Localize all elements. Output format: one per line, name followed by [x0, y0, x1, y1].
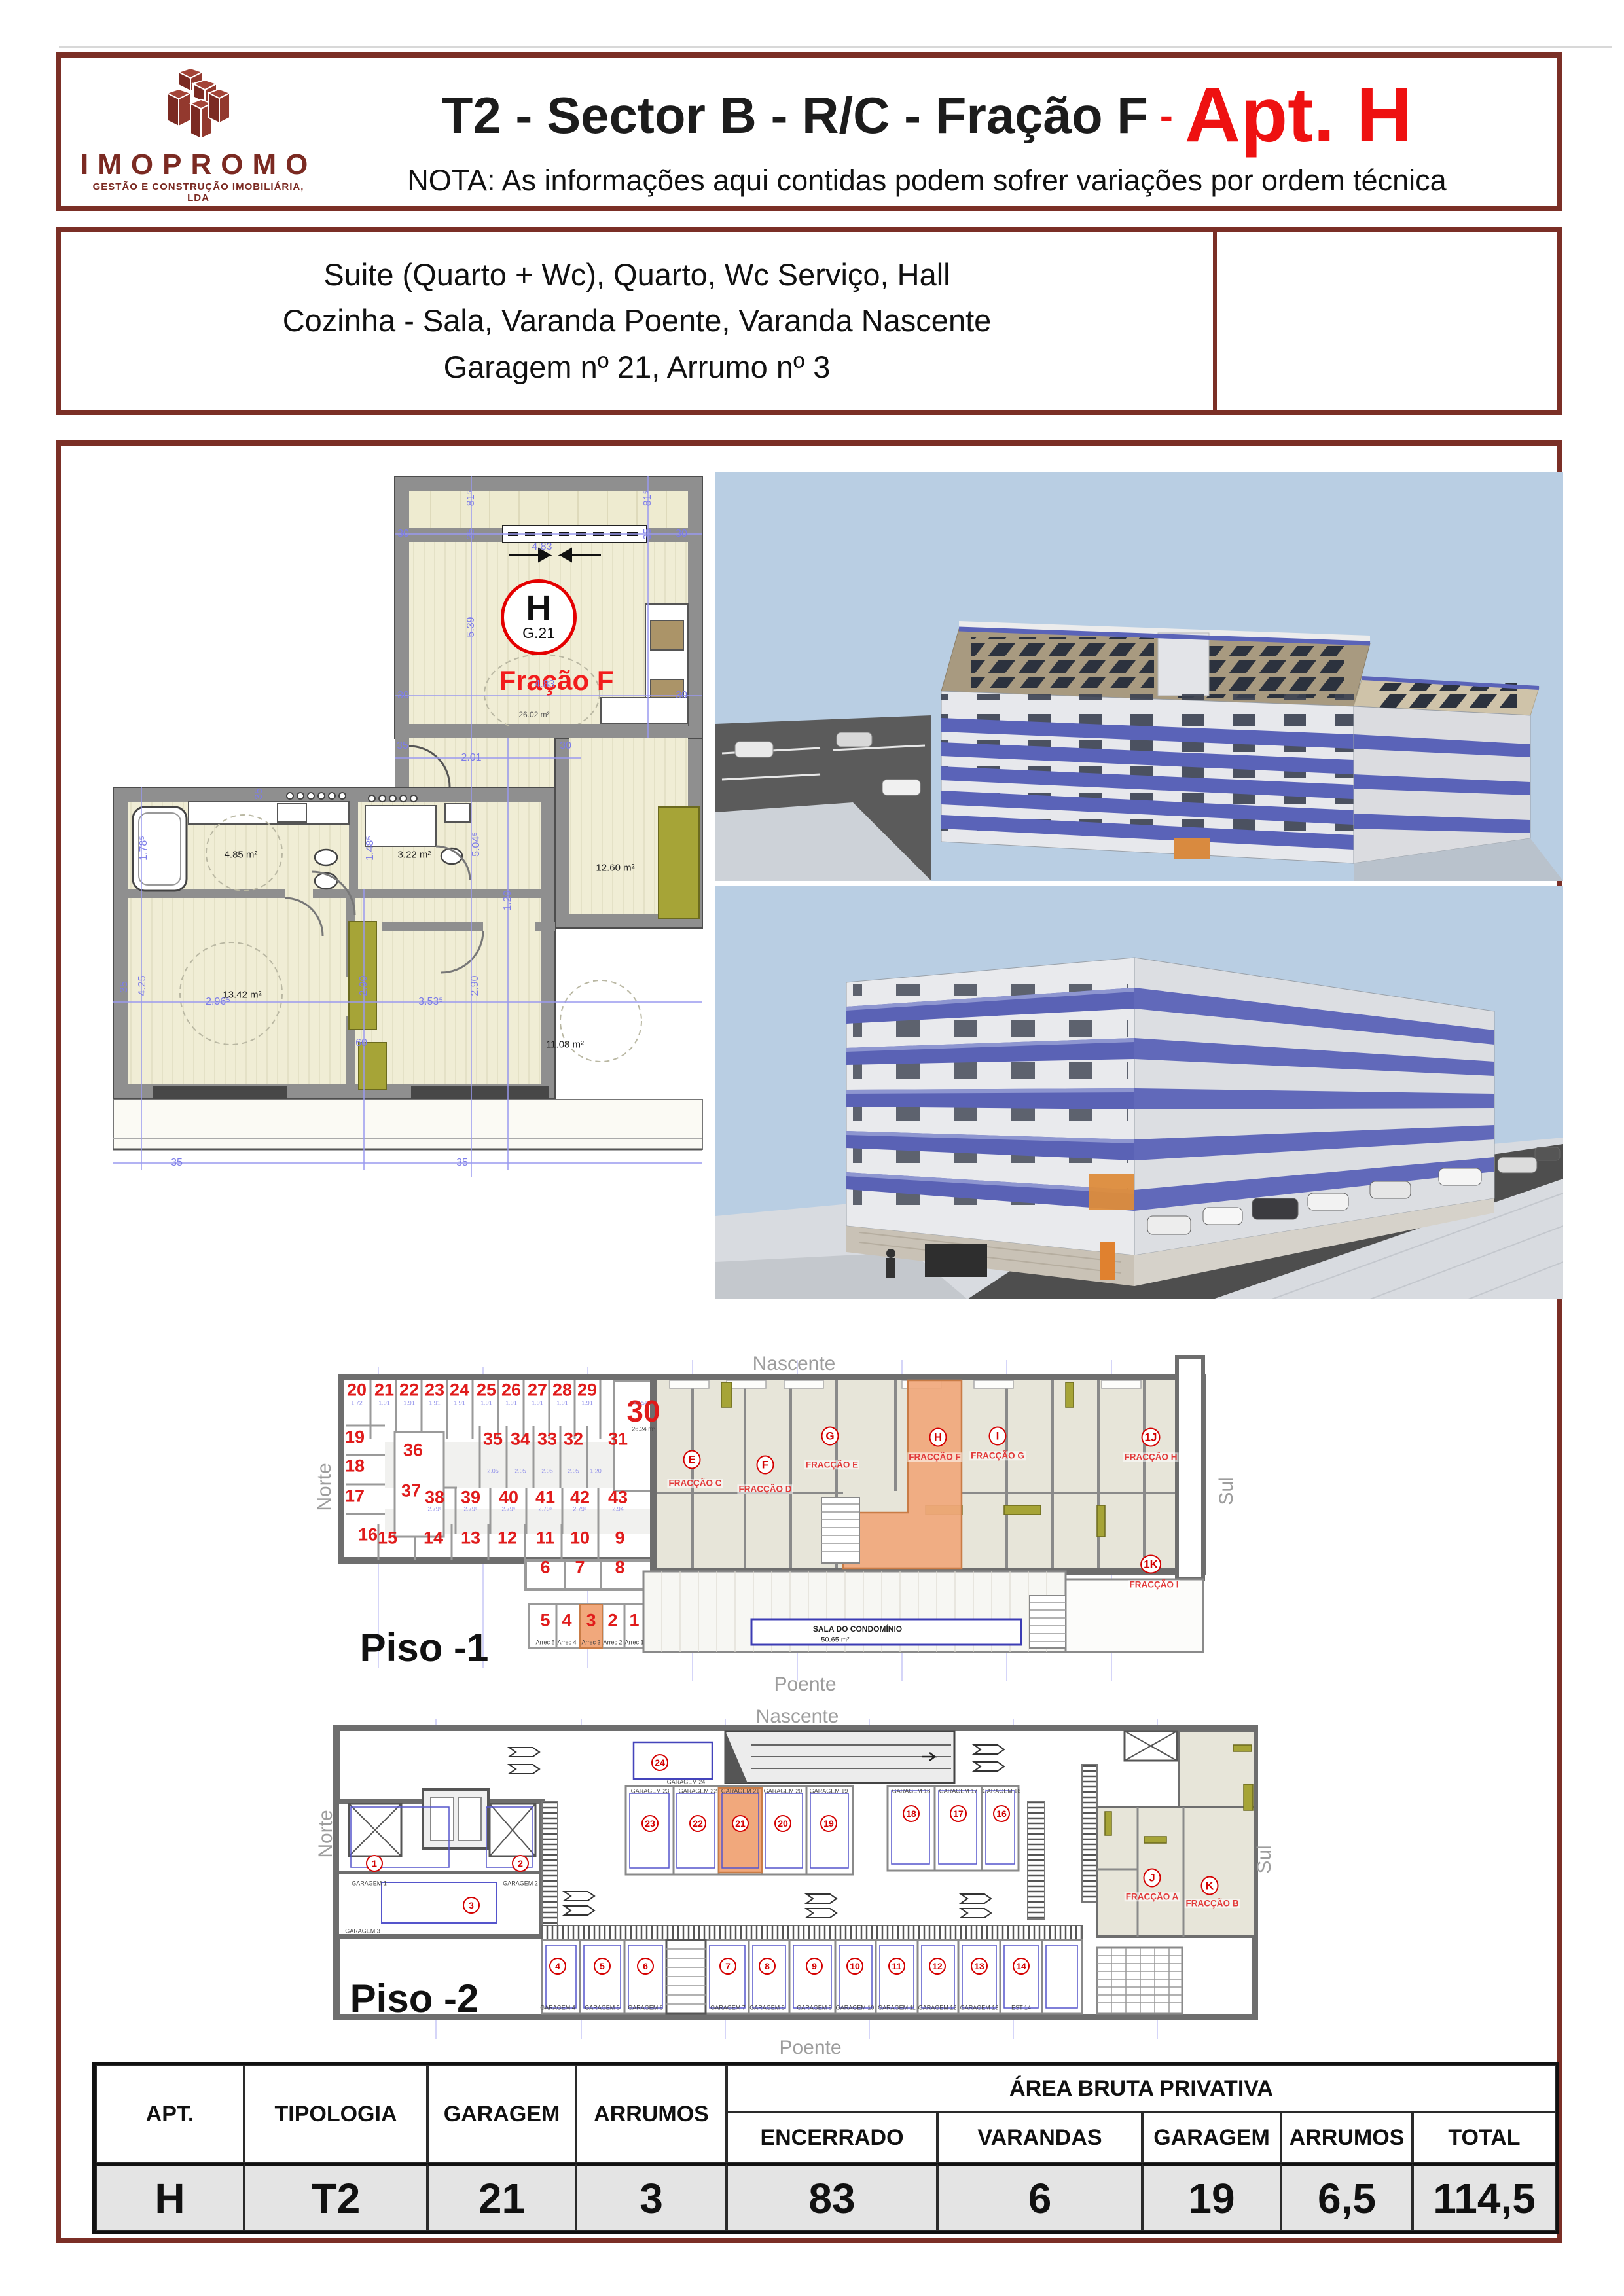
col-group-area-bruta: ÁREA BRUTA PRIVATIVA [727, 2065, 1556, 2112]
col-header-total: TOTAL [1413, 2112, 1556, 2163]
title-black: T2 - Sector B - R/C - Fração F [442, 86, 1148, 145]
value-total: 114,5 [1413, 2163, 1556, 2231]
room-area-label: 12.60 m² [596, 863, 634, 873]
description-text: Suite (Quarto + Wc), Quarto, Wc Serviço,… [61, 232, 1213, 410]
room-area-label: 26.02 m² [518, 711, 549, 719]
fracao-label: FRACÇÃO B [1185, 1899, 1240, 1908]
logo: IMOPROMO GESTÃO E CONSTRUÇÃO IMOBILIÁRIA… [81, 67, 316, 204]
title-apartment: Apt. H [1185, 71, 1412, 160]
room-area-label: 3.22 m² [398, 850, 431, 860]
room-area-label: 13.42 m² [223, 990, 261, 1000]
fracao-label: J [1144, 1869, 1161, 1888]
fracao-label: FRACÇÃO H [1123, 1452, 1179, 1462]
page-top-rule [59, 46, 1612, 48]
value-garagem-area: 19 [1142, 2163, 1281, 2231]
fracao-label: 1J [1142, 1428, 1161, 1447]
render-street [715, 886, 1563, 1299]
page-title: T2 - Sector B - R/C - Fração F - Apt. H [310, 63, 1544, 168]
col-header-varandas: VARANDAS [937, 2112, 1142, 2163]
description-line-1: Suite (Quarto + Wc), Quarto, Wc Serviço,… [323, 252, 950, 298]
fracao-label: FRACÇÃO A [1125, 1892, 1180, 1901]
fracao-label: E [683, 1450, 701, 1469]
fracao-label: FRACÇÃO F [907, 1452, 962, 1462]
col-header-arrumos-area: ARRUMOS [1281, 2112, 1413, 2163]
title-dash: - [1160, 93, 1173, 138]
room-area-label: 4.85 m² [225, 850, 258, 860]
logo-tagline: GESTÃO E CONSTRUÇÃO IMOBILIÁRIA, LDA [81, 181, 316, 204]
col-header-tipologia: TIPOLOGIA [244, 2065, 427, 2163]
col-header-apt: APT. [96, 2065, 244, 2163]
fracao-label: I [989, 1427, 1007, 1446]
areas-table: APT. TIPOLOGIA GARAGEM ARRUMOS ÁREA BRUT… [92, 2062, 1559, 2234]
fracao-label: FRACÇÃO D [738, 1484, 793, 1494]
fracao-label: FRACÇÃO G [969, 1451, 1026, 1460]
render-street-image [715, 886, 1563, 1299]
value-varandas: 6 [937, 2163, 1142, 2231]
fracao-label: FRACÇÃO C [668, 1479, 723, 1488]
col-header-garagem: GARAGEM [427, 2065, 576, 2163]
description-box: Suite (Quarto + Wc), Quarto, Wc Serviço,… [56, 227, 1562, 415]
value-apt: H [96, 2163, 244, 2231]
nota-text: NOTA: As informações aqui contidas podem… [310, 164, 1544, 198]
fracao-label: H [929, 1428, 947, 1447]
fracao-label: FRACÇÃO E [804, 1460, 859, 1469]
piso-2-plan: Nascente Poente Norte Sul Piso -2 123242… [293, 1706, 1373, 2059]
value-tipologia: T2 [244, 2163, 427, 2231]
col-header-arrumos: ARRUMOS [576, 2065, 727, 2163]
header-box: IMOPROMO GESTÃO E CONSTRUÇÃO IMOBILIÁRIA… [56, 52, 1562, 211]
description-divider [1213, 232, 1217, 410]
page: { "colors":{"accent_maroon":"#7b2f26","t… [0, 0, 1624, 2296]
render-aerial [715, 472, 1563, 881]
fracao-label: G [821, 1427, 839, 1446]
value-arrumos: 3 [576, 2163, 727, 2231]
render-aerial-image [715, 472, 1563, 881]
main-content-box: Fração F H G.21 81⁵81⁵303035354.835.394.… [56, 440, 1562, 2243]
description-line-3: Garagem nº 21, Arrumo nº 3 [444, 344, 831, 391]
logo-name: IMOPROMO [81, 149, 316, 181]
value-encerrado: 83 [727, 2163, 937, 2231]
value-arrumos-area: 6,5 [1281, 2163, 1413, 2231]
value-garagem: 21 [427, 2163, 576, 2231]
fracao-label: FRACÇÃO I [1128, 1580, 1180, 1589]
col-header-garagem-area: GARAGEM [1142, 2112, 1281, 2163]
description-line-2: Cozinha - Sala, Varanda Poente, Varanda … [283, 298, 992, 344]
room-area-label: 11.08 m² [546, 1040, 584, 1050]
col-header-encerrado: ENCERRADO [727, 2112, 937, 2163]
fracao-label: K [1201, 1876, 1219, 1895]
piso-1-plan: Nascente Poente Norte Sul Piso -1 SALA D… [287, 1340, 1367, 1707]
apartment-floorplan: Fração F H G.21 81⁵81⁵303035354.835.394.… [84, 463, 712, 1236]
logo-cubes-icon [159, 67, 238, 144]
fracao-label: F [757, 1456, 774, 1475]
fracao-label: 1K [1140, 1555, 1161, 1574]
